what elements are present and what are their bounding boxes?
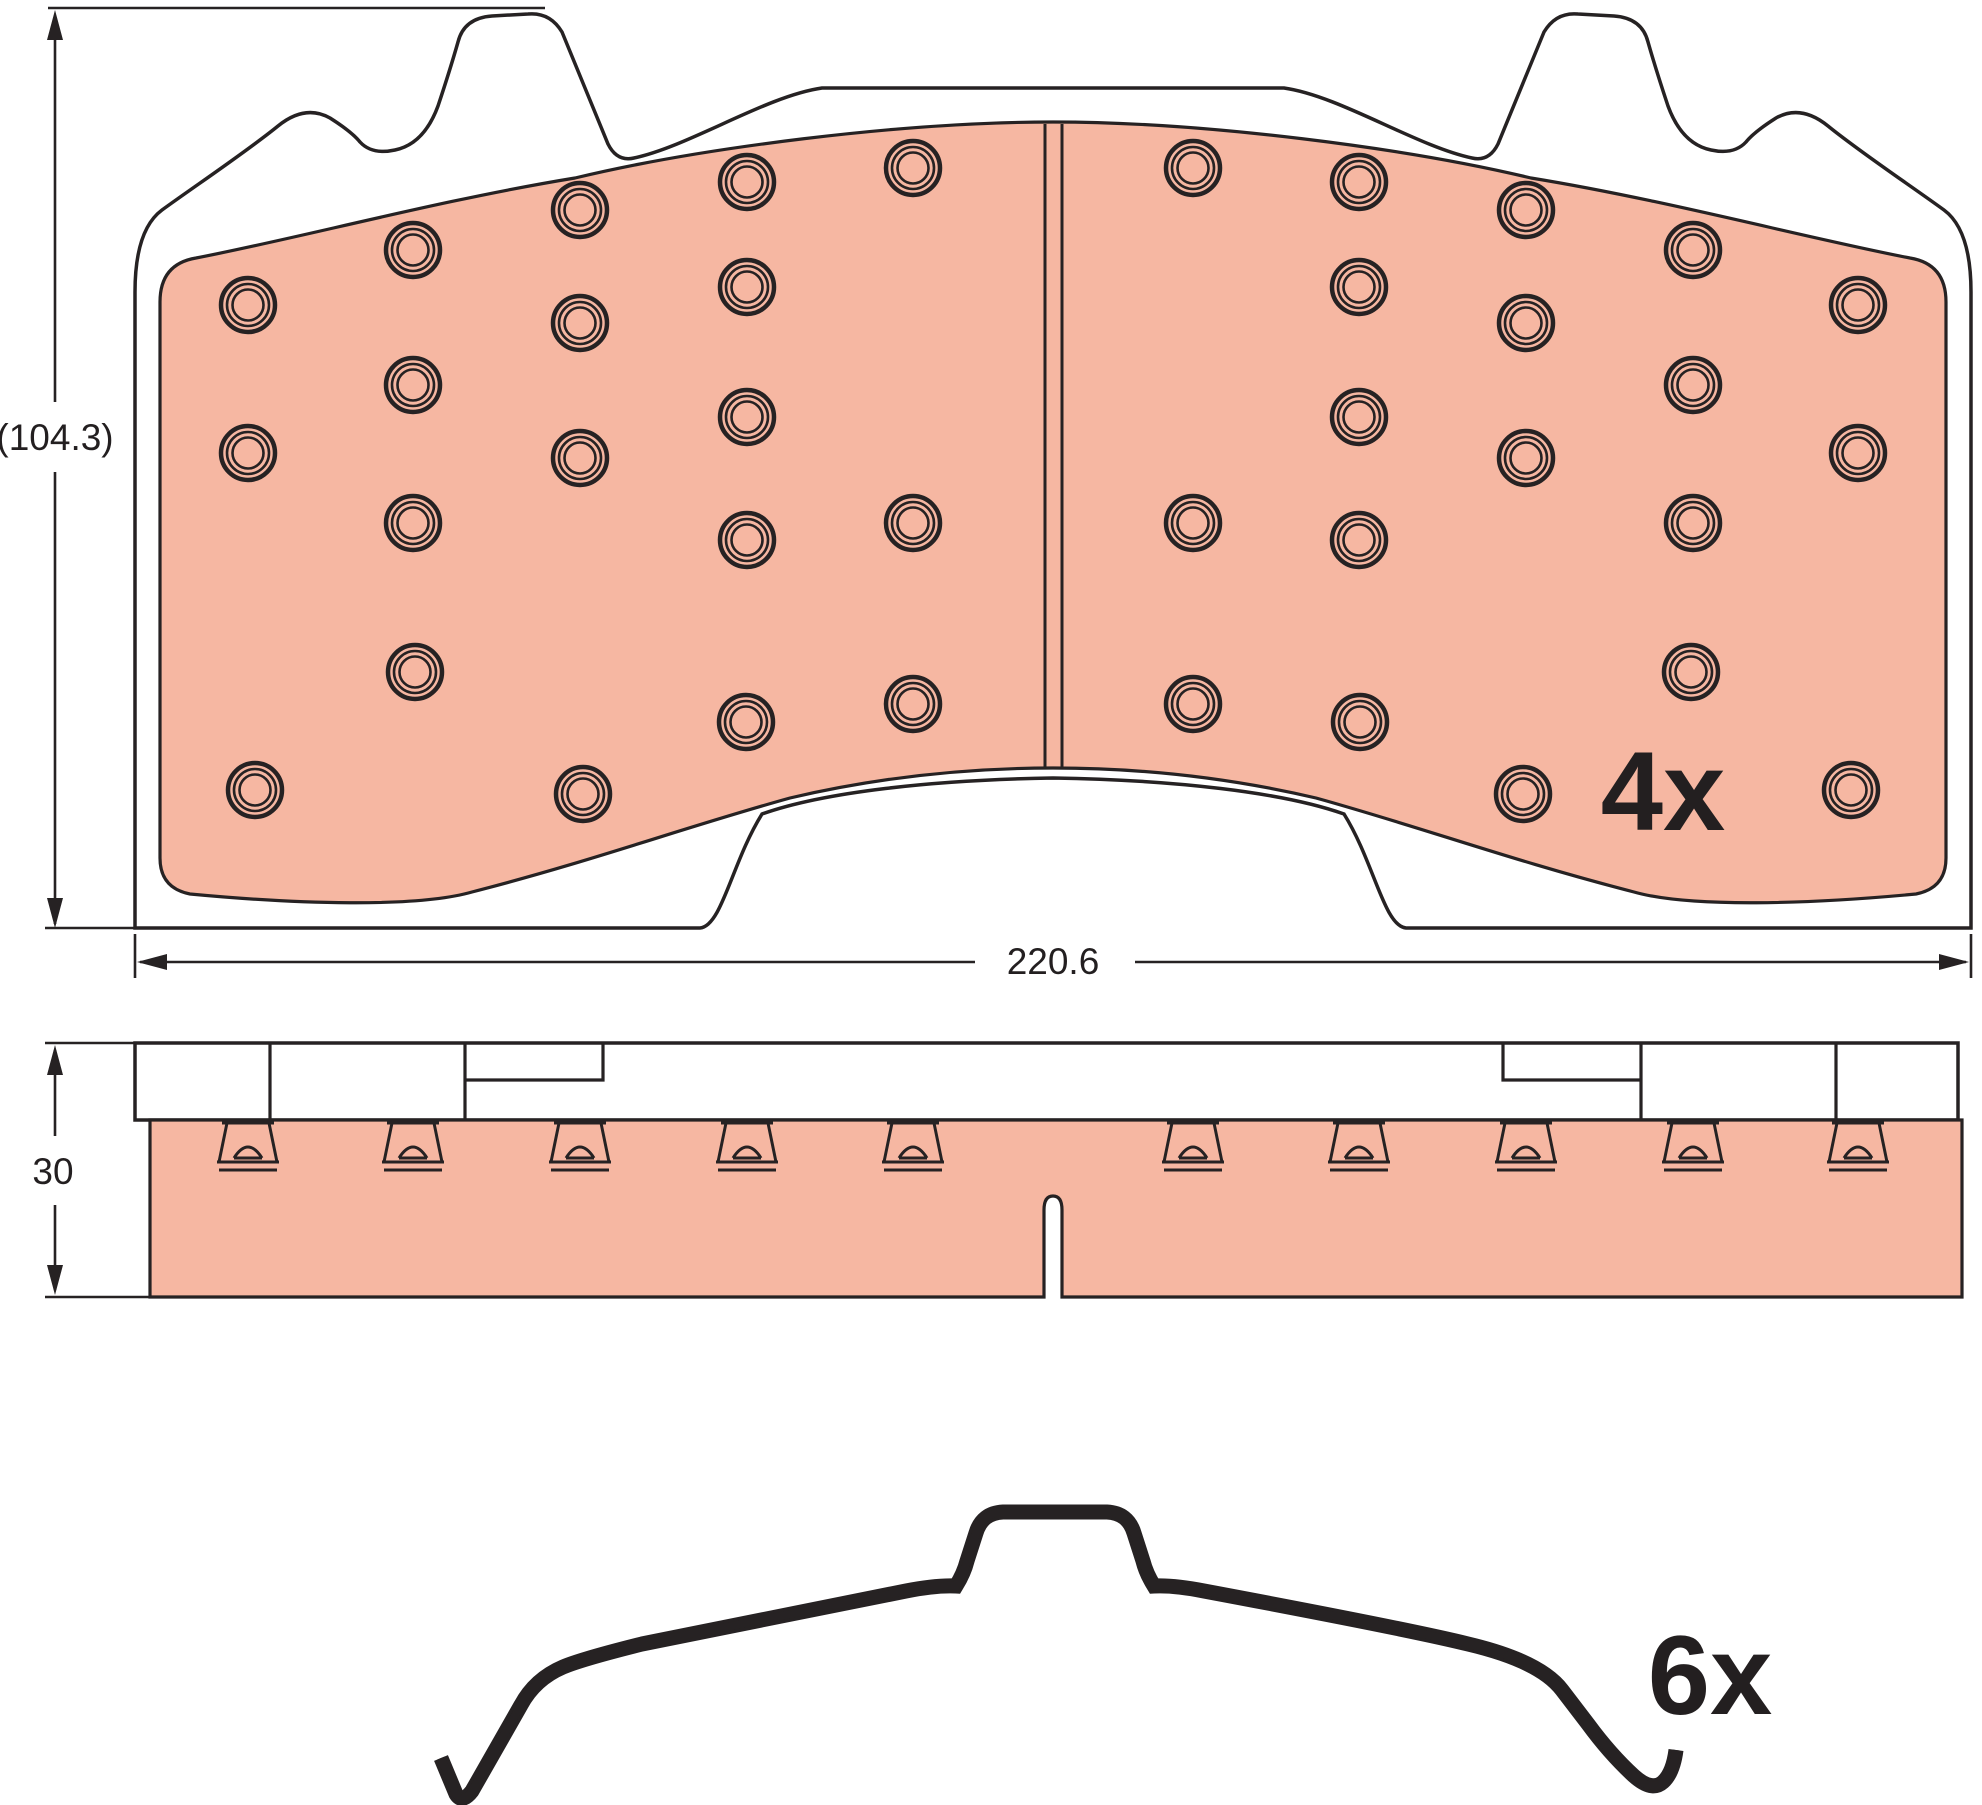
thickness-dimension-label: 30 <box>32 1151 73 1192</box>
spring-clip-outline <box>441 1512 1676 1798</box>
clip-quantity-label: 6x <box>1648 1613 1773 1738</box>
dimension-thickness: 30 <box>32 1043 150 1297</box>
side-backing-plate <box>135 1043 1958 1120</box>
arrowhead-down-icon <box>47 898 63 928</box>
front-view: 4x <box>135 14 1971 928</box>
height-dimension-label: (104.3) <box>0 417 114 458</box>
pad-quantity-label: 4x <box>1601 729 1726 854</box>
arrowhead-up-icon <box>47 10 63 40</box>
technical-drawing-page: 4x (104.3) 220.6 <box>0 0 1982 1805</box>
arrowhead-left-icon <box>137 954 167 970</box>
accessory-clip-view: 6x <box>441 1512 1772 1798</box>
arrowhead-up-icon <box>47 1045 63 1075</box>
arrowhead-right-icon <box>1939 954 1969 970</box>
arrowhead-down-icon <box>47 1265 63 1295</box>
dimension-width: 220.6 <box>135 934 1971 982</box>
side-view: 30 <box>32 1043 1962 1297</box>
width-dimension-label: 220.6 <box>1007 941 1100 982</box>
brake-pad-drawing: 4x (104.3) 220.6 <box>0 0 1982 1805</box>
